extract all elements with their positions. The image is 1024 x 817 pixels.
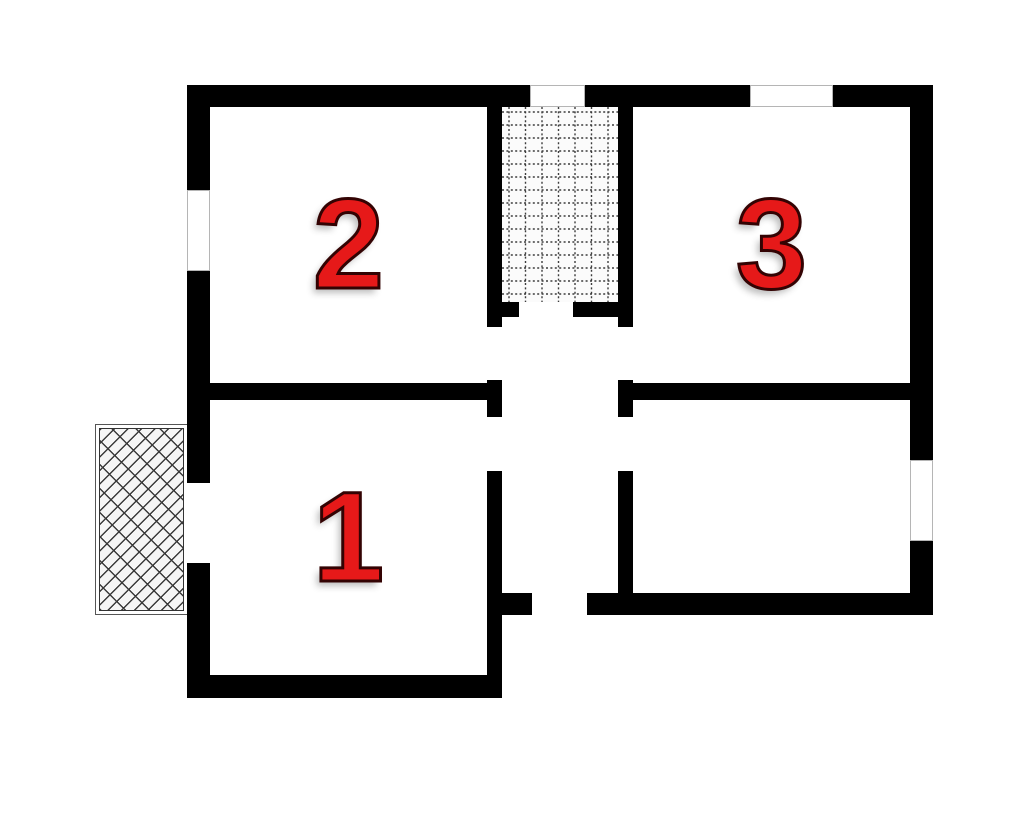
- porch-to-room1-door: [187, 483, 210, 563]
- hall-to-store-door: [618, 417, 633, 471]
- room-3-number: 3: [736, 181, 807, 309]
- outer-wall-west: [187, 85, 210, 698]
- south-entrance-door: [532, 593, 587, 615]
- stairs-north-window: [530, 85, 585, 107]
- hall-to-room3-door: [618, 327, 633, 380]
- hall-to-room1-door: [487, 417, 502, 471]
- room2-west-window: [187, 190, 210, 271]
- interior-wall-room3-store: [633, 383, 910, 400]
- stairs-grid-hatch: [502, 107, 618, 302]
- floor-plan: 2 3 1: [0, 0, 1024, 817]
- room3-north-window: [750, 85, 833, 107]
- outer-wall-south-left: [187, 675, 502, 698]
- stairs-to-hall-door: [519, 302, 573, 317]
- unlabeled-room-southeast: [633, 400, 910, 593]
- store-east-window: [910, 460, 933, 541]
- room-1-number: 1: [313, 474, 384, 602]
- room-3: 3: [633, 107, 910, 383]
- porch-brick-hatch: [99, 428, 184, 611]
- interior-wall-vertical-west: [487, 107, 502, 698]
- interior-wall-room2-room1: [210, 383, 487, 400]
- room-1: 1: [210, 400, 487, 675]
- central-hallway: [502, 317, 618, 593]
- entrance-porch: [95, 424, 188, 615]
- room-2: 2: [210, 107, 487, 383]
- room-2-number: 2: [313, 181, 384, 309]
- hall-to-room2-door: [487, 327, 502, 380]
- stairwell-tiled-area: [502, 107, 618, 302]
